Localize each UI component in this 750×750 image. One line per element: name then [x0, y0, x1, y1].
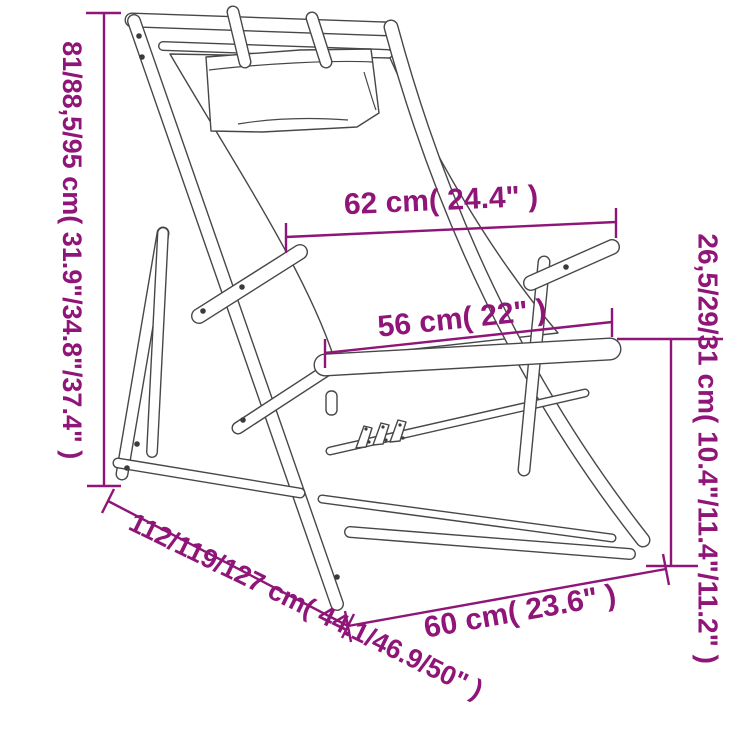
rack-pin-icon [384, 438, 387, 441]
screw-icon [563, 264, 569, 270]
screw-icon [124, 465, 130, 471]
rack-pin-icon [401, 436, 404, 439]
rack-notches [356, 420, 406, 448]
dimension-label-seat-height: 26,5/29/31 cm( 10.4"/11.4"/11.2" ) [693, 179, 722, 719]
screw-icon [136, 33, 142, 39]
screw-icon [239, 284, 245, 290]
screw-icon [200, 308, 206, 314]
hinge-bracket [326, 391, 337, 415]
rack-pin-icon [398, 423, 401, 426]
left-height-dimension-line [86, 13, 121, 486]
screw-icon [134, 441, 140, 447]
screw-icon [334, 574, 340, 580]
seat-front-bar [325, 349, 610, 365]
rack-pin-icon [381, 425, 384, 428]
rack-pin-icon [367, 440, 370, 443]
left-ground-runner [118, 463, 300, 493]
headrest-top-bar [132, 20, 390, 29]
screw-icon [240, 417, 246, 423]
screw-icon [139, 54, 145, 60]
dimension-label-height: 81/88,5/95 cm( 31.9"/34.8"/37.4" ) [58, 0, 86, 515]
rack-pin-icon [364, 427, 367, 430]
deck-chair-dimension-diagram: 81/88,5/95 cm( 31.9"/34.8"/37.4" ) 62 cm… [0, 0, 750, 750]
